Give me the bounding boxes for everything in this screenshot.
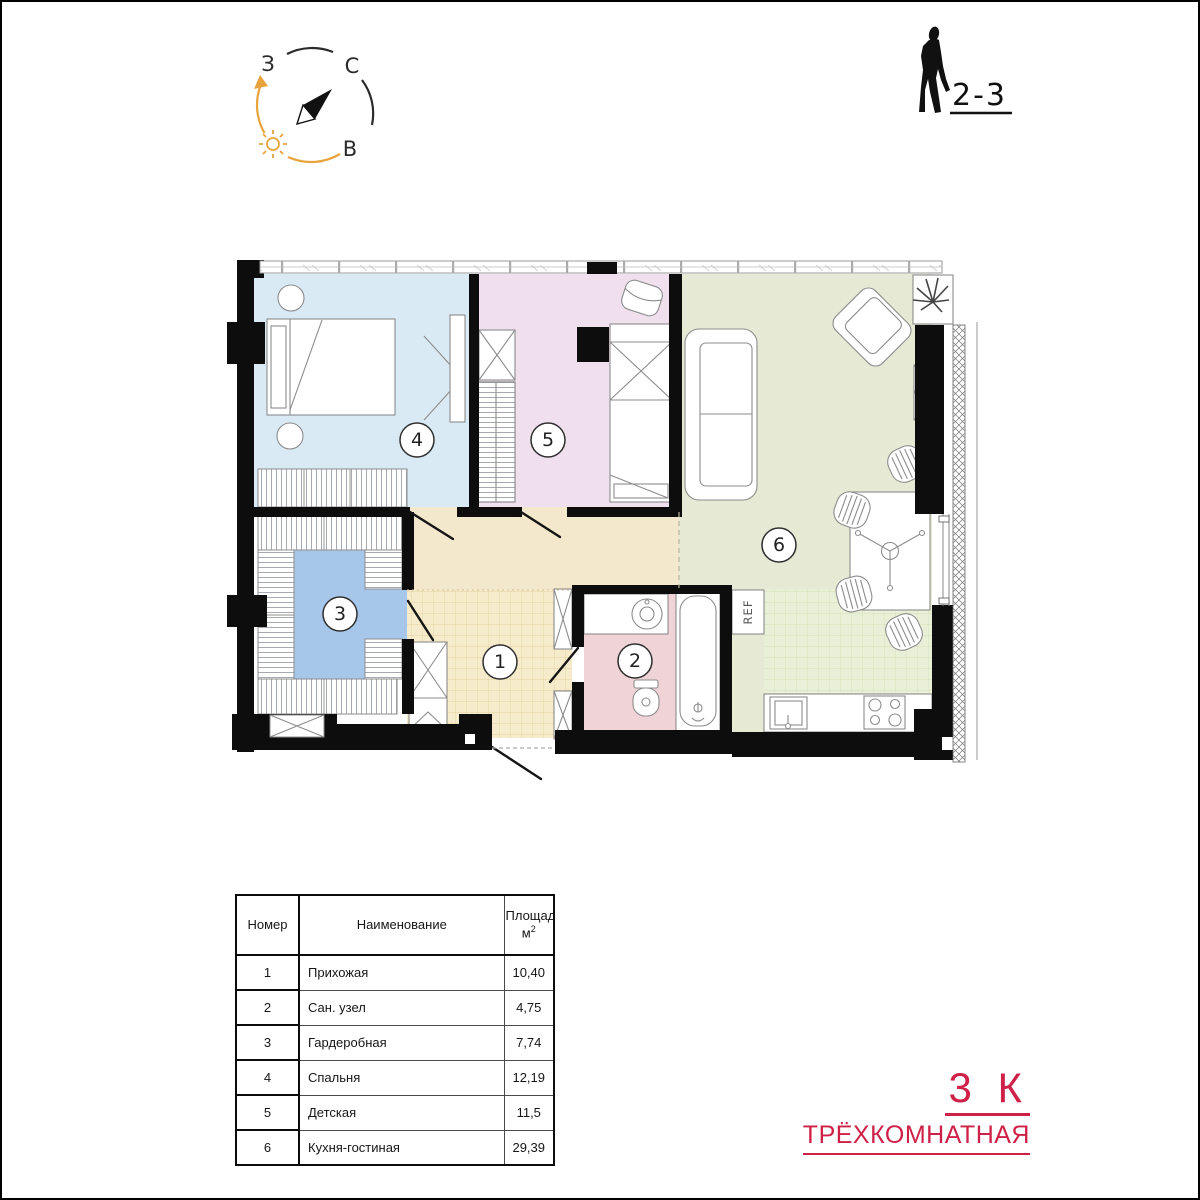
room-number-cell: 3 [236,1025,299,1060]
room-area-cell: 12,19 [504,1060,554,1095]
room-1-badge: 1 [483,645,517,679]
col-header-number: Номер [236,895,299,955]
coat-closet-icon [409,642,447,732]
room-5-badge: 5 [531,423,565,457]
single-bed-icon [610,324,672,502]
room-number-cell: 4 [236,1060,299,1095]
compass-arrowhead-icon [254,75,268,89]
room-number-cell: 1 [236,955,299,990]
toilet-icon [633,680,659,716]
closet-box-icon [479,330,515,380]
sofa-icon [685,329,757,500]
compass-arc-north [287,48,333,54]
shelf-unit-icon [477,382,515,502]
shelf-band-icon [365,639,402,679]
bathtub-icon [676,590,720,732]
svg-text:6: 6 [773,534,785,556]
room-area-cell: 4,75 [504,990,554,1025]
window-handle-icon [939,598,949,604]
shelf-band-icon [258,679,397,714]
built-in-cabinet-icon [270,715,324,737]
wardrobe-door-panel [450,315,465,422]
legend-row: 1 Прихожая 10,40 [236,955,554,990]
compass: З С В [230,24,400,174]
fridge-label: REF [741,600,755,625]
room-area-cell: 11,5 [504,1095,554,1130]
svg-text:2: 2 [629,650,641,672]
room-name-cell: Гардеробная [299,1025,504,1060]
apartment-type-name: ТРЁХКОМНАТНАЯ [803,1122,1030,1155]
room-area-cell: 7,74 [504,1025,554,1060]
sun-icon [259,130,287,158]
legend-row: 3 Гардеробная 7,74 [236,1025,554,1060]
shelf-band-icon [365,550,402,589]
shelf-band-icon [258,512,402,550]
room-area-cell: 29,39 [504,1130,554,1165]
svg-text:4: 4 [411,429,423,451]
room-name-cell: Сан. узел [299,990,504,1025]
compass-arc-south [288,154,340,162]
room-4-badge: 4 [400,423,434,457]
room-2-badge: 2 [618,644,652,678]
legend-row: 6 Кухня-гостиная 29,39 [236,1130,554,1165]
svg-text:3: 3 [334,603,346,625]
pouf-icon [278,285,304,311]
floor-range-label: 2-3 [952,78,1007,113]
col-header-name: Наименование [299,895,504,955]
legend-row: 5 Детская 11,5 [236,1095,554,1130]
room-number-cell: 2 [236,990,299,1025]
floor-plan-sheet: З С В 2-3 [0,0,1200,1200]
corridor-area [407,507,679,590]
compass-needle-icon [297,89,332,124]
kitchen-sink-icon [770,697,807,729]
svg-text:1: 1 [494,651,506,673]
legend-row: 4 Спальня 12,19 [236,1060,554,1095]
apartment-type-short: 3 К [945,1065,1031,1116]
legend-table: Номер Наименование Площадь,м2 1 Прихожая… [235,894,555,1166]
room-number-cell: 5 [236,1095,299,1130]
window-handle-icon [939,516,949,522]
compass-west-label: З [261,52,274,76]
svg-text:5: 5 [542,429,554,451]
room-3-badge: 3 [323,597,357,631]
room-6-badge: 6 [762,528,796,562]
room-name-cell: Детская [299,1095,504,1130]
plant-icon [913,275,953,324]
col-header-area: Площадь,м2 [504,895,554,955]
compass-north-label: С [345,54,360,78]
floor-indicator: 2-3 [900,22,1018,122]
vanity-sink-icon [584,594,668,634]
compass-east-label: В [343,137,357,161]
pouf-icon [277,423,303,449]
entrance-door [492,747,541,779]
room-name-cell: Кухня-гостиная [299,1130,504,1165]
room-number-cell: 6 [236,1130,299,1165]
floor-plan: REF 1 2 3 4 5 [224,250,984,812]
apartment-type: 3 К ТРЁХКОМНАТНАЯ [803,1065,1030,1155]
compass-arc-east [362,80,373,125]
wall-niche [465,734,475,744]
stove-icon [864,696,905,729]
double-bed-icon [267,319,395,415]
room-area-cell: 10,40 [504,955,554,990]
room-name-cell: Спальня [299,1060,504,1095]
shelf-band-icon [258,469,407,507]
legend-row: 2 Сан. узел 4,75 [236,990,554,1025]
compass-arrow-arc [257,85,264,133]
washer-icon [554,589,572,649]
person-icon [919,26,950,113]
legend-header-row: Номер Наименование Площадь,м2 [236,895,554,955]
room-name-cell: Прихожая [299,955,504,990]
